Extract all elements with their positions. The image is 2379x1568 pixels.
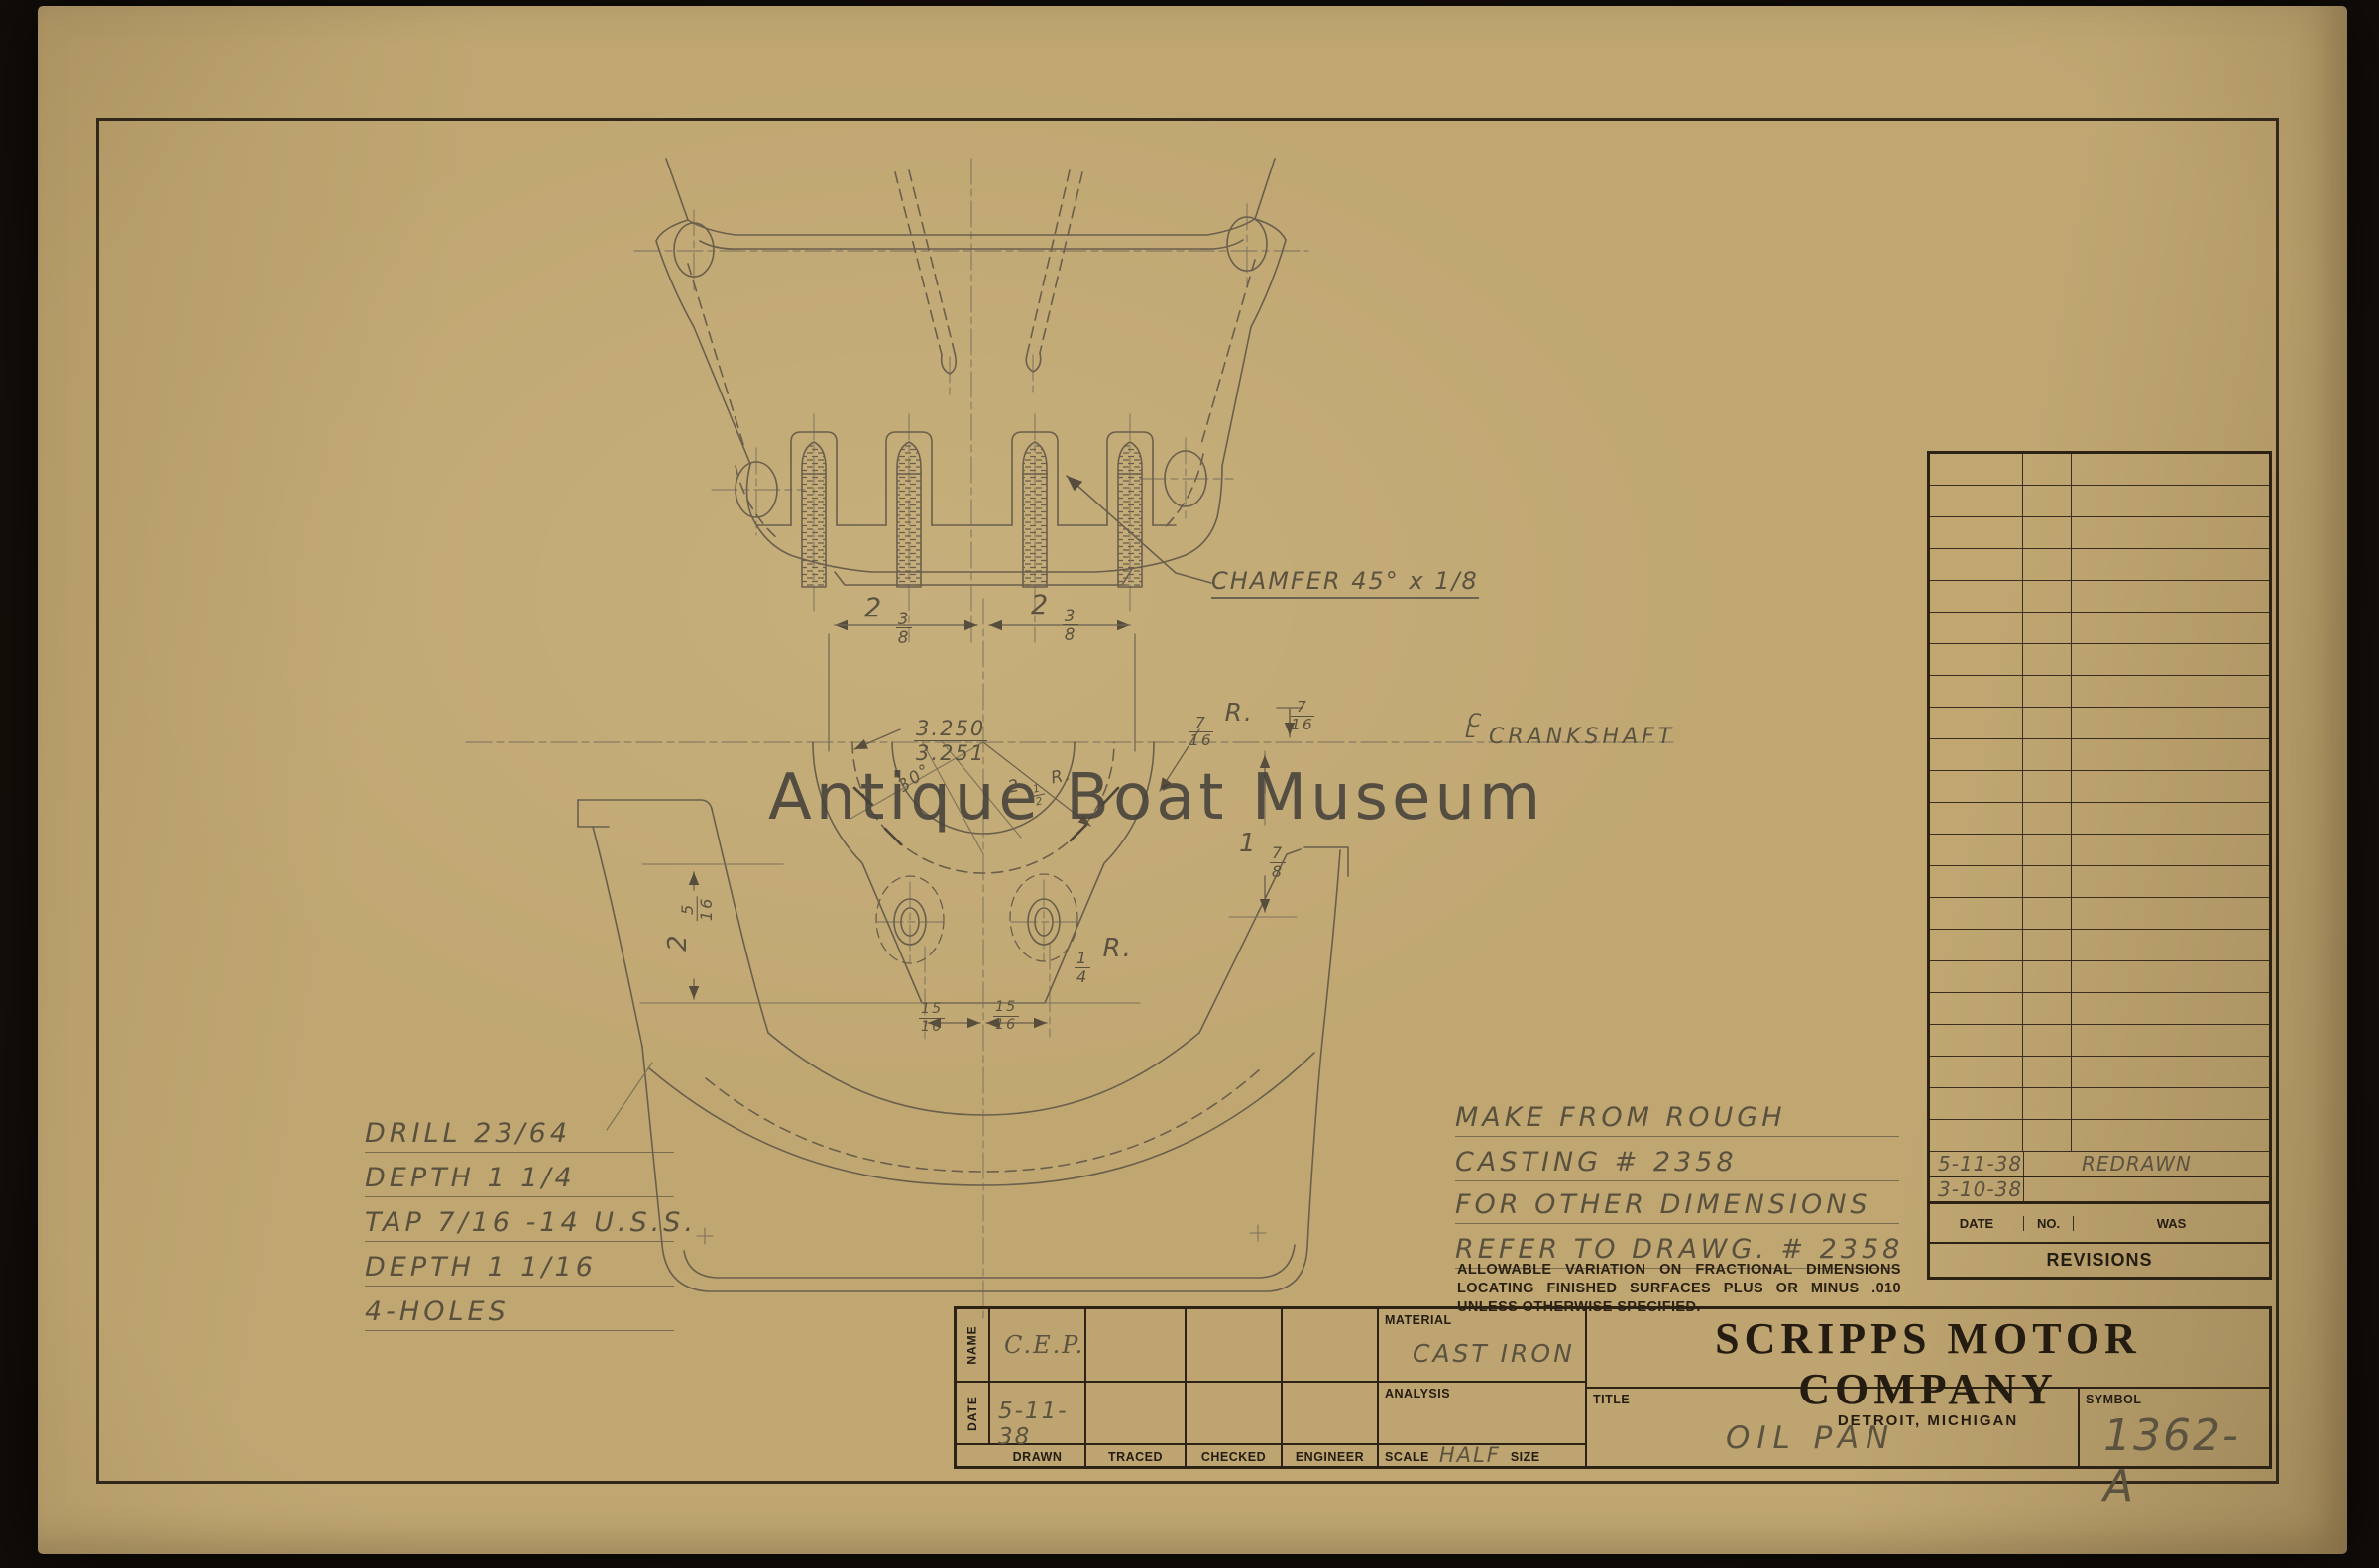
crankshaft-centerline-label: CL CRANKSHAFT	[1465, 714, 1675, 749]
analysis-cell: ANALYSIS	[1379, 1383, 1587, 1445]
drill-tap-note: DRILL 23/64DEPTH 1 1/4TAP 7/16 -14 U.S.S…	[365, 1118, 674, 1341]
note-line: TAP 7/16 -14 U.S.S.	[365, 1207, 674, 1242]
symbol-label: SYMBOL	[2086, 1393, 2141, 1406]
symbol-value: 1362-A	[2103, 1410, 2269, 1512]
engineer-label: ENGINEER	[1283, 1445, 1379, 1469]
revisions-header-row: DATE NO. WAS	[1930, 1203, 2269, 1244]
symbol-cell: SYMBOL 1362-A	[2080, 1389, 2269, 1469]
title-block: NAME DATE C.E.P. 5-11-38 DRAWN TRACED CH…	[954, 1306, 2272, 1469]
drawn-name-cell: C.E.P.	[990, 1309, 1086, 1383]
engineer-name-cell	[1283, 1309, 1379, 1383]
revision-empty-row	[1930, 486, 2269, 517]
centerline-icon: CL	[1465, 714, 1480, 743]
company-header: SCRIPPS MOTOR COMPANY DETROIT, MICHIGAN	[1587, 1309, 2269, 1389]
checked-date-cell	[1187, 1383, 1283, 1445]
revision-empty-row	[1930, 898, 2269, 930]
depth-1-7-8-label: 1 78	[1239, 829, 1288, 881]
scanned-blueprint-photo: Antique Boat Museum CHAMFER 45° x 1/8 2 …	[0, 0, 2379, 1568]
drawn-date-cell: 5-11-38	[990, 1383, 1086, 1445]
date-row-label: DATE	[965, 1396, 979, 1431]
revision-empty-row	[1930, 739, 2269, 771]
note-line: MAKE FROM ROUGH	[1455, 1102, 1899, 1137]
revision-empty-row	[1930, 771, 2269, 803]
revision-empty-row	[1930, 1025, 2269, 1057]
casting-note: MAKE FROM ROUGHCASTING # 2358	[1455, 1102, 1899, 1191]
analysis-label: ANALYSIS	[1385, 1387, 1450, 1400]
revisions-was-header: WAS	[2074, 1216, 2269, 1231]
traced-name-cell	[1086, 1309, 1187, 1383]
chamfer-dimension-label: CHAMFER 45° x 1/8	[1211, 567, 1479, 599]
note-line: DRILL 23/64	[365, 1118, 674, 1153]
revision-entry-row: 5-11-38REDRAWN	[1930, 1152, 2269, 1177]
drawn-label: DRAWN	[990, 1445, 1086, 1469]
note-line: 4-HOLES	[365, 1296, 674, 1331]
revisions-entries: 5-11-38REDRAWN3-10-38	[1930, 1152, 2269, 1203]
checked-label: CHECKED	[1187, 1445, 1283, 1469]
revision-empty-row	[1930, 644, 2269, 676]
corner-cell	[957, 1445, 990, 1469]
name-row-label: NAME	[965, 1325, 979, 1364]
revisions-title: REVISIONS	[1930, 1244, 2269, 1277]
depth-2-5-16-label: 2 516	[663, 868, 716, 977]
note-line: CASTING # 2358	[1455, 1147, 1899, 1181]
scale-cell: SCALE HALF SIZE	[1379, 1445, 1587, 1469]
spacing-dimension-left: 2 38	[864, 593, 914, 646]
radius-1-4-label: 14 R.	[1073, 934, 1133, 986]
revision-empty-row	[1930, 961, 2269, 993]
bore-dimension-label: 3.2503.251	[912, 696, 989, 763]
revisions-no-header: NO.	[2024, 1216, 2074, 1231]
scale-value: HALF	[1439, 1443, 1501, 1467]
scale-label: SCALE	[1385, 1450, 1429, 1464]
drawing-title-label: TITLE	[1593, 1393, 1630, 1406]
material-label: MATERIAL	[1385, 1313, 1452, 1327]
note-line: DEPTH 1 1/4	[365, 1163, 674, 1197]
stud-spacing-right-label: 1516	[991, 985, 1021, 1032]
drawn-date-value: 5-11-38	[998, 1399, 1084, 1450]
offset-7-16-label: 716	[1289, 682, 1316, 733]
traced-label: TRACED	[1086, 1445, 1187, 1469]
revision-empty-row	[1930, 676, 2269, 708]
scale-suffix-label: SIZE	[1511, 1450, 1540, 1464]
revision-empty-row	[1930, 454, 2269, 486]
material-cell: MATERIAL CAST IRON	[1379, 1309, 1587, 1383]
revision-empty-row	[1930, 613, 2269, 644]
revisions-table: 5-11-38REDRAWN3-10-38 DATE NO. WAS REVIS…	[1927, 451, 2272, 1280]
museum-watermark: Antique Boat Museum	[768, 761, 1544, 835]
revision-empty-row	[1930, 866, 2269, 898]
revision-empty-row	[1930, 1088, 2269, 1120]
revision-empty-row	[1930, 1057, 2269, 1088]
revision-empty-row	[1930, 993, 2269, 1025]
engineer-date-cell	[1283, 1383, 1379, 1445]
drawn-name-value: C.E.P.	[1004, 1331, 1084, 1359]
stud-spacing-left-label: 1516	[917, 987, 947, 1034]
material-value: CAST IRON	[1413, 1339, 1575, 1368]
revision-empty-row	[1930, 835, 2269, 866]
revision-entry-row: 3-10-38	[1930, 1177, 2269, 1203]
revision-empty-row	[1930, 930, 2269, 961]
checked-name-cell	[1187, 1309, 1283, 1383]
revision-empty-row	[1930, 803, 2269, 835]
revision-empty-row	[1930, 1120, 2269, 1152]
revision-empty-row	[1930, 549, 2269, 581]
revision-empty-row	[1930, 708, 2269, 739]
spacing-dimension-right: 2 38	[1031, 590, 1080, 643]
note-line: DEPTH 1 1/16	[365, 1252, 674, 1287]
note-line: FOR OTHER DIMENSIONS	[1455, 1189, 1899, 1224]
date-row-label-cell: DATE	[957, 1383, 990, 1445]
revision-empty-row	[1930, 517, 2269, 549]
drawing-title-value: OIL PAN	[1726, 1420, 1895, 1456]
revisions-date-header: DATE	[1930, 1216, 2024, 1231]
traced-date-cell	[1086, 1383, 1187, 1445]
revisions-empty-rows	[1930, 454, 2269, 1152]
drawing-title-cell: TITLE OIL PAN	[1587, 1389, 2080, 1469]
radius-7-16-label: 716 R.	[1188, 698, 1254, 749]
revision-empty-row	[1930, 581, 2269, 613]
name-row-label-cell: NAME	[957, 1309, 990, 1383]
